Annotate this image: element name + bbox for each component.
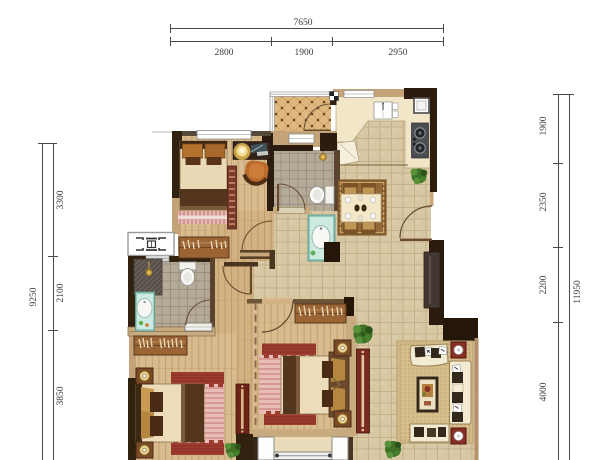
svg-text:3300: 3300 (56, 190, 66, 209)
svg-text:2950: 2950 (389, 48, 408, 58)
svg-text:2800: 2800 (215, 48, 234, 58)
svg-text:7650: 7650 (294, 18, 313, 28)
svg-text:2350: 2350 (539, 192, 549, 211)
svg-text:4000: 4000 (539, 382, 549, 401)
svg-text:2100: 2100 (56, 283, 66, 302)
svg-text:3850: 3850 (56, 386, 66, 405)
svg-text:9250: 9250 (29, 287, 39, 306)
svg-text:2200: 2200 (539, 275, 549, 294)
svg-text:1900: 1900 (539, 116, 549, 135)
svg-text:1900: 1900 (295, 48, 314, 58)
svg-text:11950: 11950 (573, 280, 583, 304)
